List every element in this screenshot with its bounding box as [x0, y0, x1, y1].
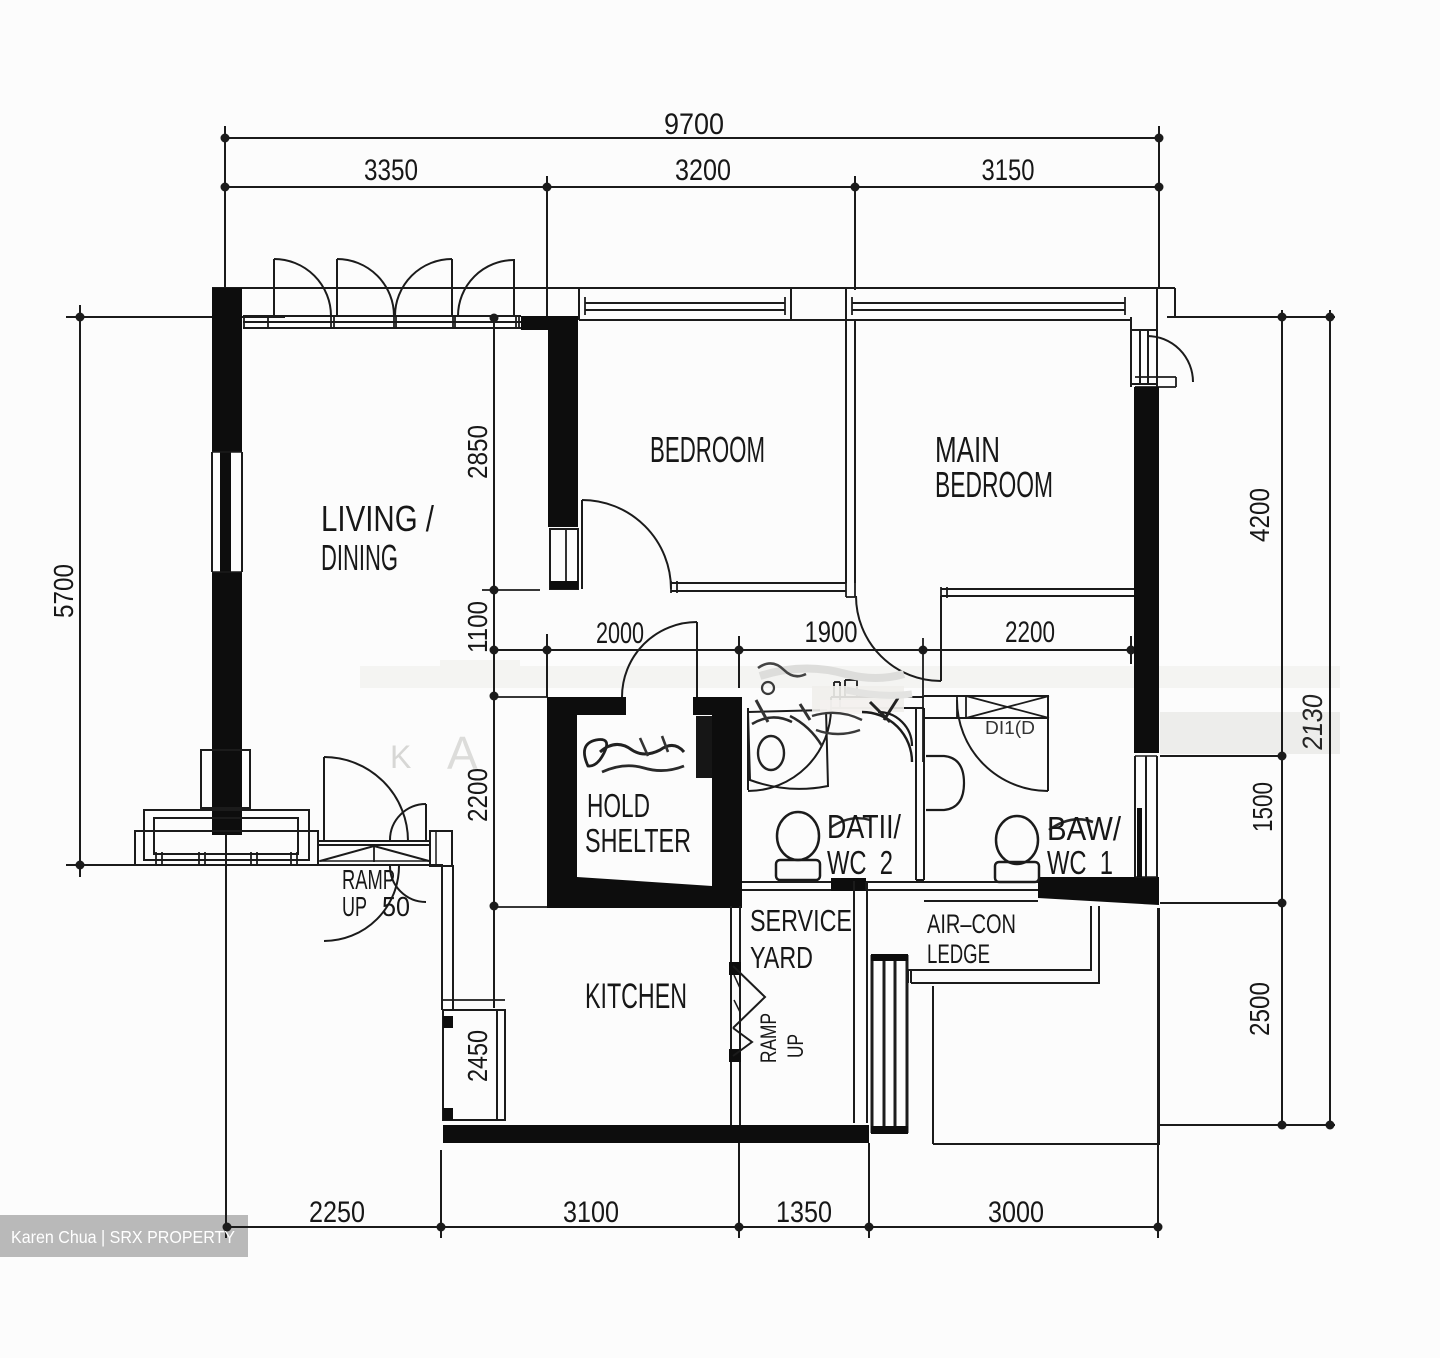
- svg-text:BEDROOM: BEDROOM: [650, 429, 765, 470]
- svg-text:1100: 1100: [462, 601, 493, 653]
- svg-text:50: 50: [382, 891, 410, 922]
- svg-text:2000: 2000: [596, 617, 644, 650]
- svg-text:AIR–CON: AIR–CON: [927, 909, 1016, 939]
- svg-text:K: K: [390, 739, 411, 775]
- svg-text:UP: UP: [342, 891, 367, 922]
- svg-text:2500: 2500: [1244, 982, 1275, 1036]
- svg-text:Karen Chua | SRX PROPERTY: Karen Chua | SRX PROPERTY: [11, 1227, 235, 1247]
- svg-text:LIVING /: LIVING /: [321, 498, 434, 539]
- svg-text:3200: 3200: [675, 154, 731, 187]
- svg-text:3150: 3150: [982, 154, 1035, 187]
- svg-text:2250: 2250: [309, 1196, 365, 1229]
- svg-text:SHELTER: SHELTER: [585, 822, 691, 859]
- svg-text:3350: 3350: [364, 154, 418, 187]
- svg-text:DATII/: DATII/: [827, 808, 902, 845]
- svg-text:KITCHEN: KITCHEN: [585, 977, 687, 1016]
- svg-text:1500: 1500: [1247, 782, 1278, 832]
- svg-text:BAW/: BAW/: [1047, 810, 1122, 847]
- svg-text:9700: 9700: [664, 108, 724, 141]
- svg-text:3100: 3100: [563, 1196, 619, 1229]
- svg-text:5700: 5700: [48, 564, 79, 618]
- svg-text:4200: 4200: [1244, 488, 1275, 542]
- svg-text:LEDGE: LEDGE: [927, 939, 990, 969]
- svg-text:RAMP: RAMP: [756, 1013, 781, 1063]
- svg-text:1350: 1350: [776, 1196, 832, 1229]
- svg-text:BEDROOM: BEDROOM: [935, 464, 1053, 505]
- svg-text:3000: 3000: [988, 1196, 1044, 1229]
- svg-text:2200: 2200: [1005, 616, 1055, 649]
- svg-text:WC 2: WC 2: [827, 844, 893, 881]
- svg-text:2130: 2130: [1297, 692, 1328, 751]
- svg-text:WC 1: WC 1: [1047, 844, 1113, 881]
- svg-text:DINING: DINING: [321, 537, 398, 578]
- svg-text:HOLD: HOLD: [587, 787, 650, 824]
- svg-text:DI1(D: DI1(D: [985, 718, 1035, 738]
- svg-text:SERVICE: SERVICE: [750, 903, 852, 938]
- svg-text:UP: UP: [783, 1034, 808, 1058]
- svg-text:2450: 2450: [462, 1030, 493, 1082]
- svg-text:2200: 2200: [462, 768, 493, 822]
- svg-text:1900: 1900: [805, 616, 858, 649]
- svg-text:YARD: YARD: [750, 940, 813, 975]
- svg-text:2850: 2850: [462, 425, 493, 479]
